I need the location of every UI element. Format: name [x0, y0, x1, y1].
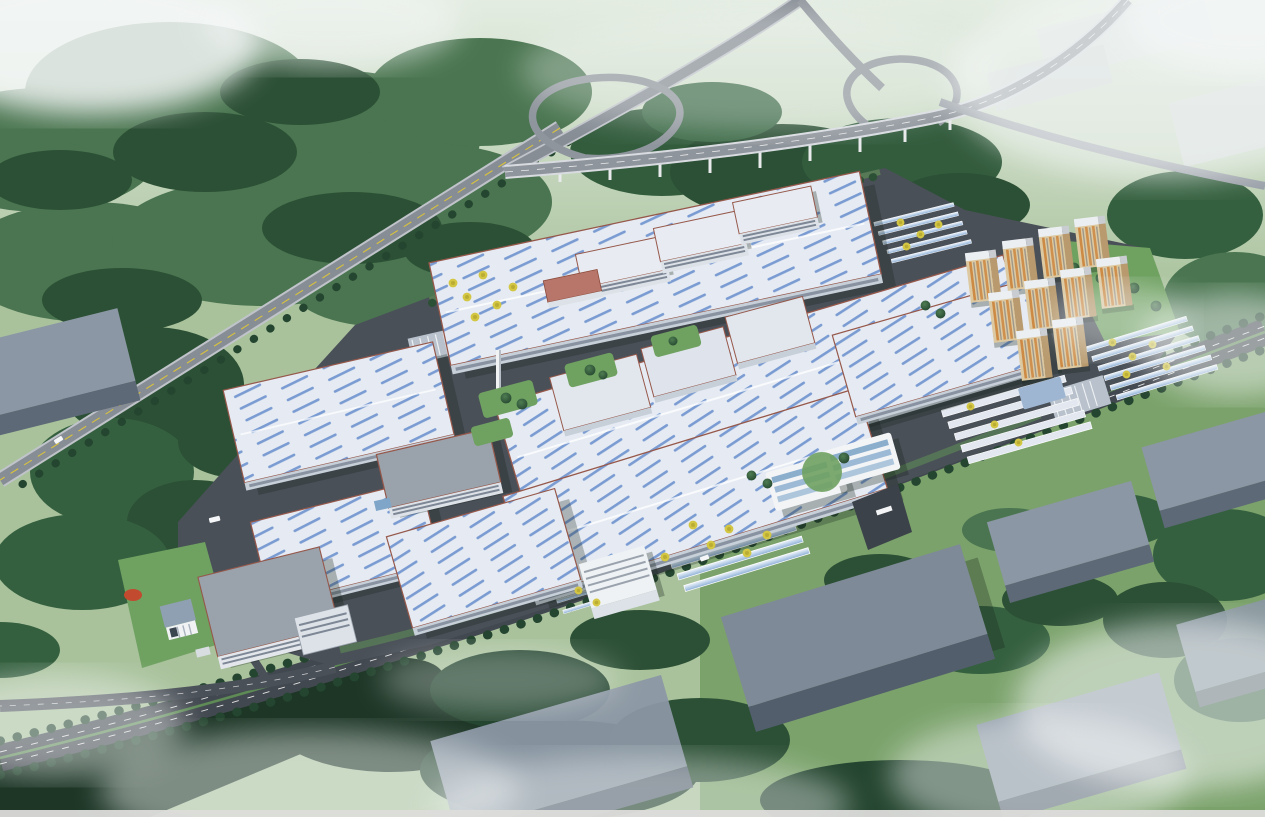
haze	[520, 8, 1000, 132]
aerial-rendering	[0, 0, 1265, 817]
cloud	[1050, 284, 1190, 356]
scan-edge-strip	[0, 810, 1265, 817]
entrance-lawn	[802, 452, 842, 492]
mist-streak	[380, 646, 620, 714]
entry-sculpture	[124, 589, 142, 601]
